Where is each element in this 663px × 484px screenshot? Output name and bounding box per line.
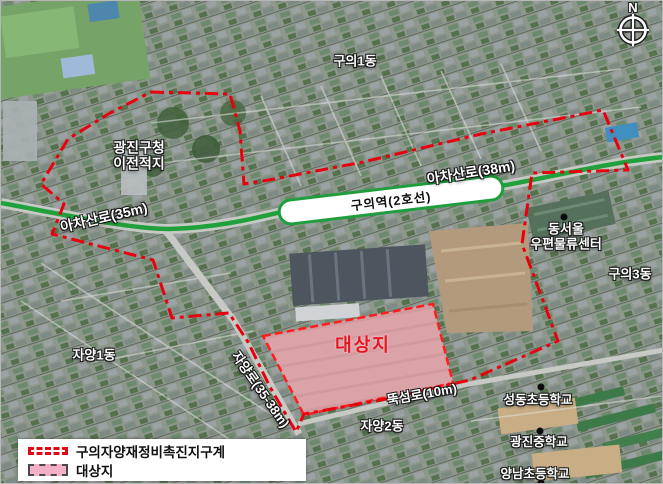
legend-district-boundary-label: 구의자양재정비촉진지구계 [76,441,225,461]
location-dot-icon [537,428,544,435]
guui-station-label: 구의역(2호선) [350,186,432,214]
legend-target-site-label: 대상지 [76,460,113,480]
map-legend: 구의자양재정비촉진지구계 대상지 [18,439,306,481]
compass-rose: N [612,3,654,52]
compass-north-label: N [612,3,654,13]
legend-row-district-boundary: 구의자양재정비촉진지구계 [28,443,296,459]
red-dashed-line-swatch-icon [28,447,68,455]
pink-area-swatch-icon [28,464,68,476]
map-canvas: 구의1동 광진구청 이전적지 아차산로(35m) 구의역(2호선) 아차산로(3… [0,0,663,484]
location-dot-icon [561,214,568,221]
location-dot-icon [538,384,545,391]
location-dot-icon [538,480,545,484]
satellite-map [1,1,663,484]
legend-row-target-site: 대상지 [28,462,296,478]
compass-rose-icon [614,13,652,47]
